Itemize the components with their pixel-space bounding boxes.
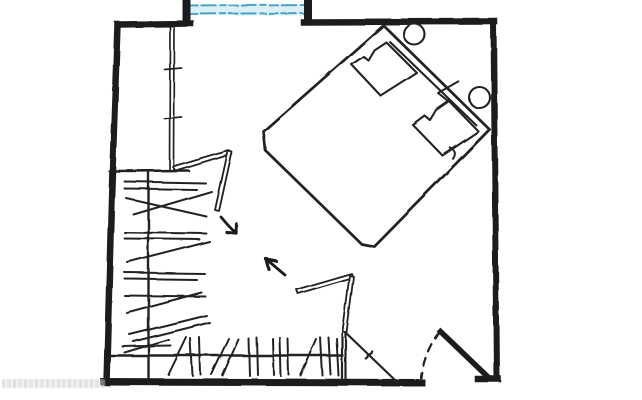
arrow-to-closet	[266, 259, 284, 274]
wardrobe-partition	[164, 26, 181, 170]
folding-door-lower	[296, 273, 353, 332]
circulation-arrows	[220, 216, 284, 274]
door-panel	[172, 150, 231, 171]
floor-plan-sketch	[0, 0, 642, 400]
entry-door	[420, 331, 488, 381]
door-panel	[214, 150, 231, 210]
entry-door-leaf	[440, 331, 488, 377]
window-glass-line-outer	[188, 4, 305, 5]
watermark	[2, 379, 105, 388]
door-swing-arc	[420, 331, 439, 381]
arrow-to-bed	[220, 216, 236, 233]
floor-plan-drawing	[0, 0, 642, 400]
window	[188, 4, 305, 15]
headboard-lamp-left	[404, 24, 425, 45]
partition-shelf-tick	[164, 68, 181, 70]
walk-in-closet	[109, 26, 342, 382]
hanger-marks-left	[122, 181, 211, 352]
wall-top	[303, 21, 494, 22]
bed	[263, 24, 490, 247]
door-panel	[296, 273, 353, 293]
triangle-hypotenuse	[344, 331, 397, 382]
door-panel	[342, 275, 353, 332]
partition-shelf-tick	[164, 117, 181, 119]
corner-panel-triangle	[342, 331, 398, 382]
wall-right	[493, 21, 496, 378]
wall-bottom	[103, 381, 421, 382]
window-glass-line-inner	[188, 13, 305, 14]
headboard-lamp-right	[469, 87, 490, 108]
